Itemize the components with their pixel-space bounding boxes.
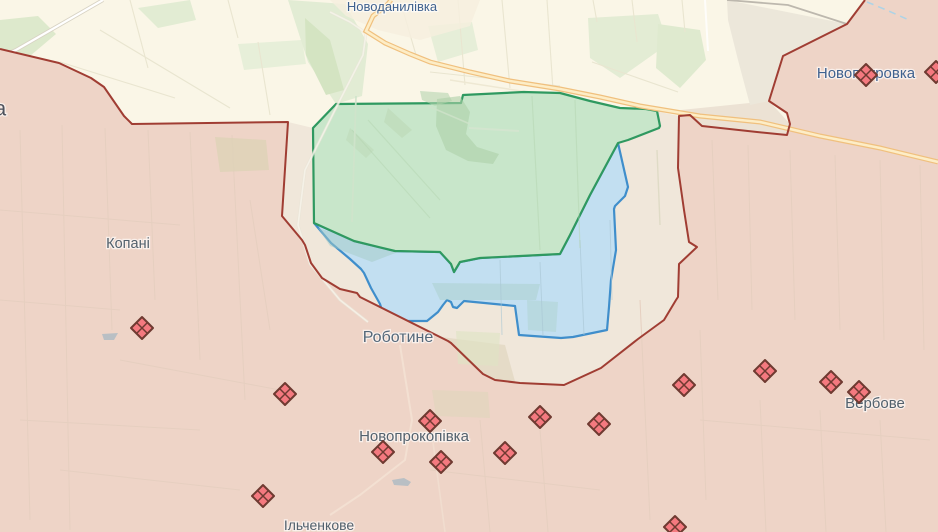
svg-text:Копані: Копані xyxy=(106,236,150,252)
svg-text:Новопрокопівка: Новопрокопівка xyxy=(359,428,470,445)
svg-text:а: а xyxy=(0,98,7,121)
svg-text:Ільченкове: Ільченкове xyxy=(284,517,355,532)
svg-text:Роботине: Роботине xyxy=(363,329,434,346)
svg-text:Новоданилівка: Новоданилівка xyxy=(347,0,438,14)
